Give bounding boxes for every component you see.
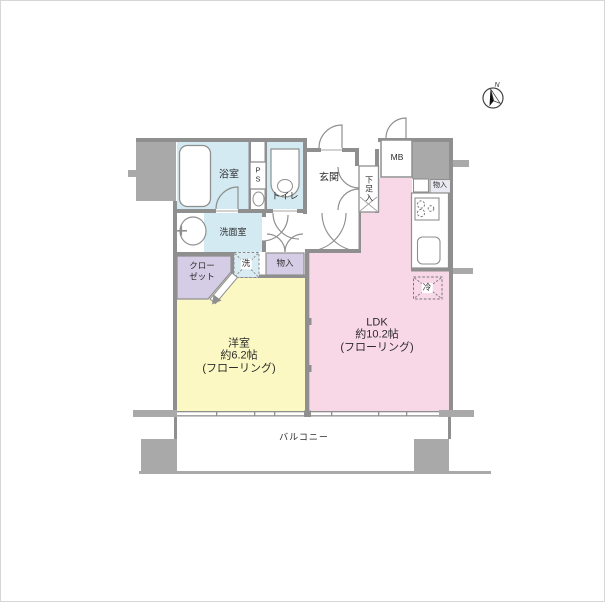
floor-plan: N 浴室 P S トイレ 玄関 下足入 MB 物入 洗面室 洗 物入 クロー ゼ…: [0, 0, 605, 602]
toilet-door-sill: [273, 210, 297, 211]
wall-washroom-east-a: [262, 213, 266, 217]
washroom-label: 洗面室: [219, 227, 246, 237]
wall-washroom-bottom: [177, 252, 231, 256]
meter-box-label: MB: [391, 153, 404, 163]
kitchen-sink: [418, 237, 441, 264]
divider-notch-2: [305, 365, 312, 372]
wall-washroom-top-b: [238, 209, 273, 213]
shoe-cabinet-door-arc-top: [338, 167, 359, 188]
toilet-label: トイレ: [271, 191, 298, 201]
western-room-flooring: (フローリング): [202, 362, 275, 374]
refrigerator-label: 冷: [422, 283, 433, 293]
wall-washroom-top-a: [177, 209, 216, 213]
stove: [415, 198, 439, 220]
hall-storage-door-arc-left: [267, 234, 285, 252]
washroom-door-arc: [262, 215, 288, 241]
wall-entrance-shoe: [355, 148, 359, 166]
closet-label: クロー ゼット: [189, 261, 215, 282]
wall-washroom-top-c: [297, 209, 307, 213]
bath-door-sill: [216, 210, 238, 211]
balcony-label: バルコニー: [279, 432, 329, 442]
kitchen-storage-label: 物入: [433, 182, 447, 190]
western-room-name: 洋室: [202, 337, 275, 349]
wall-block-top-right: [412, 138, 453, 179]
meter-box-door-arc: [386, 118, 406, 138]
wall-western-ldk-divider: [305, 249, 310, 412]
bathtub: [180, 146, 211, 207]
ldk-label: LDK 約10.2帖 (フローリング): [340, 316, 413, 353]
entrance-door-sill: [321, 149, 342, 150]
shoe-cabinet-label: 下足入: [364, 176, 373, 203]
ldk-size: 約10.2帖: [340, 329, 413, 341]
wall-top-left-run: [136, 138, 307, 142]
pipe-space-line2: S: [255, 175, 260, 184]
washbasin-faucet-tick: [181, 226, 183, 236]
kitchen-upper-box: [414, 179, 429, 192]
wall-tick-right-top: [453, 160, 469, 167]
wall-tick-left: [128, 170, 136, 177]
wall-entrance-left: [306, 148, 321, 152]
window-wall-left-block: [133, 410, 177, 417]
balcony-pillar-left: [141, 439, 177, 473]
hall-storage-label: 物入: [276, 259, 293, 269]
balcony-left-edge: [174, 417, 177, 439]
wall-left: [173, 201, 177, 412]
western-room-label: 洋室 約6.2帖 (フローリング): [202, 337, 275, 374]
shoe-cabinet-door-arc-bottom: [338, 189, 359, 210]
compass: N: [483, 82, 503, 108]
bathroom-label: 浴室: [219, 169, 239, 181]
closet-line1: クロー: [189, 261, 215, 272]
wall-washroom-east-b: [262, 241, 266, 252]
balcony-right-edge: [448, 417, 451, 439]
divider-notch-1: [305, 318, 312, 325]
entrance-label: 玄関: [319, 172, 339, 184]
wall-block-top-left: [136, 139, 176, 201]
wall-entrance-right: [342, 148, 357, 152]
entrance-door-arc: [319, 125, 342, 148]
balcony-pillar-right: [414, 439, 449, 473]
window-wall-right-block: [439, 410, 474, 417]
toilet-hand-basin: [253, 192, 264, 206]
pipe-space-label: P S: [255, 167, 260, 184]
ldk-name: LDK: [340, 316, 413, 328]
ldk-flooring: (フローリング): [340, 341, 413, 353]
western-room-size: 約6.2帖: [202, 350, 275, 362]
balcony-bottom-rail: [139, 471, 491, 474]
closet-line2: ゼット: [189, 271, 215, 282]
floor-plan-drawing: N: [1, 1, 605, 602]
washer-label: 洗: [241, 259, 252, 269]
compass-north-label: N: [494, 82, 500, 89]
wall-toilet-entrance: [303, 142, 307, 214]
wall-hall-ldk: [359, 212, 362, 253]
